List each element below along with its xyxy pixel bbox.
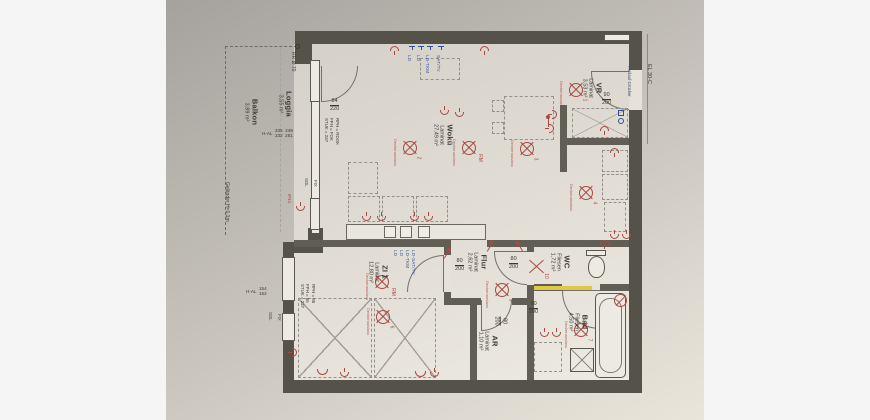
page: Balkon 3,89 m² Loggia 3,55 m² Wokü Lamin… xyxy=(0,0,870,420)
zi1-door-leaf xyxy=(443,255,444,292)
bad-door-leaf xyxy=(562,290,600,291)
ceiling-light-icon: 4 Deckenauslass xyxy=(579,186,593,200)
el-label: EL 30-C xyxy=(646,64,652,84)
window-zi1-lower xyxy=(282,313,295,341)
room-label-balkon: Balkon 3,89 m² xyxy=(244,99,259,125)
balkon-name: Balkon xyxy=(250,99,259,125)
kitchen-hob xyxy=(400,226,412,238)
vr-floor: Laminat xyxy=(588,78,594,98)
dim-zi1-door: 80 200 xyxy=(455,258,464,272)
vr-area: 3,53 m² xyxy=(581,79,587,98)
wokue-name: Wokü xyxy=(445,124,454,145)
window-levels-lower: RPH = 85 FPH = 86 STUK = 237 xyxy=(299,284,316,308)
flur-name: Flur xyxy=(479,255,488,270)
flur-area: 2,62 m² xyxy=(466,253,472,272)
balcony-railing-top xyxy=(225,46,302,47)
data-outlet-label: SAT/TV xyxy=(436,55,441,72)
ceiling-light-icon: 2 Deckenauslass xyxy=(403,141,417,155)
flur-floor: Laminat xyxy=(473,252,479,272)
wc-floor: Fliesen xyxy=(556,253,562,271)
socket-icon xyxy=(390,46,399,51)
zi1-floor: Laminat xyxy=(374,262,380,282)
data-outlet-label: LD-TKM xyxy=(425,55,430,73)
toilet-bowl xyxy=(588,256,605,278)
wall-wc-top xyxy=(534,240,629,247)
ar-area: 1,10 m² xyxy=(477,332,483,351)
appliance-outline xyxy=(604,202,626,232)
glazing-fix-label: FIX xyxy=(277,314,282,321)
doorbell-button-icon xyxy=(618,118,624,124)
appliance-outline xyxy=(602,174,628,200)
floorplan-photo: Balkon 3,89 m² Loggia 3,55 m² Wokü Lamin… xyxy=(166,0,704,420)
loggia-area: 3,55 m² xyxy=(278,95,284,114)
window-dims-upper: H-AL 235232 249251 xyxy=(262,128,293,139)
chair-outline xyxy=(492,100,504,112)
room-label-bad: Bad Fliesen 4,50 m² xyxy=(567,313,588,332)
room-label-loggia: Loggia 3,55 m² xyxy=(278,91,293,117)
wall-vr-bottom xyxy=(560,138,629,145)
room-label-flur: Flur Laminat 2,62 m² xyxy=(466,252,487,272)
ceiling-light-icon: 6 Deckenauslass xyxy=(376,310,390,324)
entrance-door-leaf xyxy=(591,71,629,72)
dim-wc-door: 80 200 xyxy=(509,256,518,270)
ar-door-leaf xyxy=(481,300,482,331)
top-wall-niche xyxy=(604,34,630,41)
data-outlet-icon xyxy=(409,46,415,47)
ar-name: AR xyxy=(490,335,499,346)
dim-entrance-door: 90 200 xyxy=(602,92,611,106)
data-outlet-icon xyxy=(438,46,444,47)
socket-icon xyxy=(480,46,489,51)
bad-area: 4,50 m² xyxy=(567,313,573,332)
railing-label: Geländer H=1,1m xyxy=(224,182,230,222)
window-levels-upper: RPH = RDOK FPH = FOK STUK = 237 xyxy=(323,118,340,145)
kitchen-appliance xyxy=(418,226,430,238)
wc-area: 1,72 m² xyxy=(549,253,555,272)
entrance-note: Freilauf-Drücker xyxy=(627,66,632,97)
balkon-area: 3,89 m² xyxy=(244,103,250,122)
zi1-closet-left xyxy=(298,298,372,378)
wc-name: WC xyxy=(562,256,571,269)
dim-bad-door: 80 200 xyxy=(529,301,538,315)
dimension-line xyxy=(647,34,648,144)
data-outlet-label: LD-SAT/TV xyxy=(411,250,416,275)
data-outlet-label: LD xyxy=(399,250,404,256)
zi1-door-opening xyxy=(444,255,451,292)
socket-icon xyxy=(600,126,609,131)
smoke-detector-icon: RM Deckenauslass xyxy=(462,141,476,155)
glazing-sol-label: SOL xyxy=(268,312,273,321)
ip44-label: IP44 xyxy=(287,194,292,203)
socket-icon xyxy=(600,240,609,245)
wall-ar-left xyxy=(470,305,477,380)
room-label-zi1: ZI 1 Laminat 12,80 m² xyxy=(367,261,388,283)
washing-machine-outline xyxy=(534,342,562,372)
balkon-loggia-divider xyxy=(280,48,281,232)
data-outlet-icon xyxy=(418,46,424,47)
bad-floor: Fliesen xyxy=(574,313,580,331)
doorbell-icon xyxy=(618,110,624,116)
switch-icon xyxy=(548,118,549,127)
wall-flur-bottom-left xyxy=(444,298,481,305)
bad-name: Bad xyxy=(580,315,589,330)
wokue-area: 27,49 m² xyxy=(432,124,438,146)
room-label-ar: AR Laminat 1,10 m² xyxy=(477,331,498,351)
zi1-area: 12,80 m² xyxy=(367,261,373,283)
loggia-name: Loggia xyxy=(284,91,293,117)
zi1-name: ZI 1 xyxy=(380,265,389,279)
chair-outline xyxy=(492,122,504,134)
kitchen-cabinet-outline xyxy=(382,196,414,222)
dim-balcony-door: 84 220 xyxy=(330,98,339,112)
balcony-door-frame xyxy=(310,60,320,102)
downpipe-icon xyxy=(295,44,300,49)
room-label-vr: VR Laminat 3,53 m² xyxy=(581,78,602,98)
wall-bad-top-right xyxy=(600,284,629,291)
wokue-floor: Laminat xyxy=(439,125,445,145)
glazing-fix-label: FIX xyxy=(313,180,318,187)
washbasin xyxy=(570,348,594,372)
loggia-fix-glazing xyxy=(310,198,320,230)
kitchen-sink xyxy=(384,226,396,238)
highlight-yellow xyxy=(534,286,592,290)
data-outlet-icon xyxy=(427,46,433,47)
data-outlet-label: LD xyxy=(416,55,421,61)
socket-icon xyxy=(610,148,619,153)
data-outlet-label: LD-TKM xyxy=(405,250,410,268)
ceiling-light-icon: 3 Deckenauslass xyxy=(520,142,534,156)
data-outlet-label: LD xyxy=(407,55,412,61)
glazing-sol-label: SOL xyxy=(304,178,309,187)
dim-ar-door: 80 200 xyxy=(494,317,508,326)
data-outlet-label: LD xyxy=(393,250,398,256)
wall-zi1-top xyxy=(294,240,451,247)
wall-top xyxy=(302,31,642,44)
downpipe-label: RR Ø 70 xyxy=(290,52,296,71)
vent-icon xyxy=(614,294,627,307)
kitchen-cabinet-outline xyxy=(348,162,378,194)
ceiling-light-icon: 5 Deckenauslass xyxy=(495,283,509,297)
ar-floor: Laminat xyxy=(484,331,490,351)
wc-ceiling-mark-icon: 10 xyxy=(529,259,544,274)
window-dims-lower: H-AL 154152 xyxy=(246,286,267,297)
kitchen-counter xyxy=(346,224,486,240)
room-label-wokue: Wokü Laminat 27,49 m² xyxy=(432,124,453,146)
balcony-door-leaf xyxy=(321,66,322,102)
appliance-outline xyxy=(602,150,628,172)
wall-bottom xyxy=(288,380,642,393)
window-zi1-upper xyxy=(282,257,295,301)
room-label-wc: WC Fliesen 1,72 m² xyxy=(549,253,570,272)
